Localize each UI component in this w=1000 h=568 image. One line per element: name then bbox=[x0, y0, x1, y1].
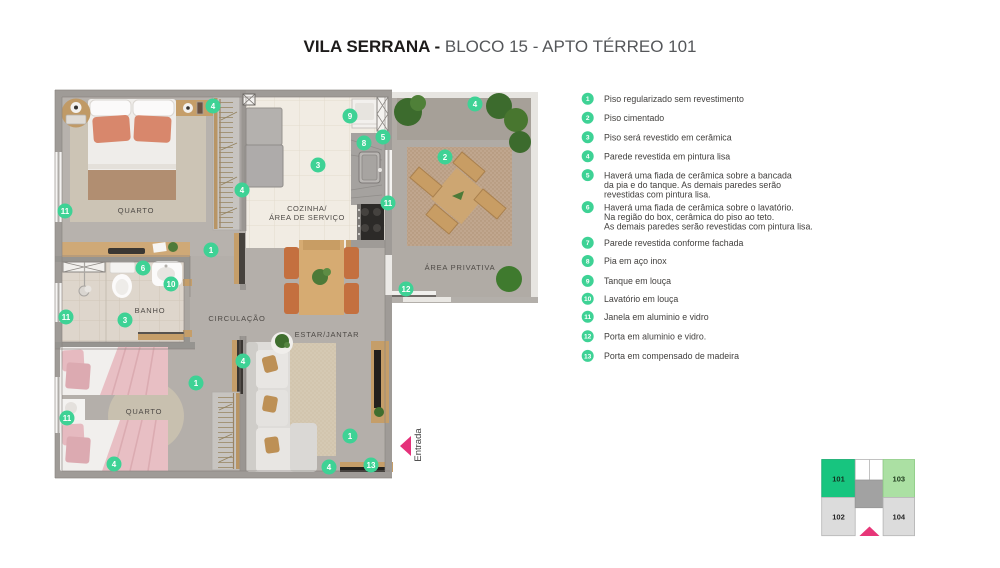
svg-text:8: 8 bbox=[362, 139, 367, 148]
svg-text:4: 4 bbox=[241, 357, 246, 366]
svg-text:10: 10 bbox=[584, 296, 592, 303]
svg-text:Janela em aluminio e vidro: Janela em aluminio e vidro bbox=[604, 312, 709, 322]
svg-text:11: 11 bbox=[584, 314, 591, 321]
svg-text:Lavatório em louça: Lavatório em louça bbox=[604, 294, 678, 304]
svg-text:2: 2 bbox=[443, 153, 448, 162]
svg-text:ÁREA DE SERVIÇO: ÁREA DE SERVIÇO bbox=[269, 213, 345, 222]
svg-text:4: 4 bbox=[211, 102, 216, 111]
svg-text:ÁREA PRIVATIVA: ÁREA PRIVATIVA bbox=[425, 263, 496, 272]
svg-text:3: 3 bbox=[586, 135, 590, 142]
svg-text:12: 12 bbox=[584, 334, 592, 341]
svg-text:13: 13 bbox=[584, 353, 592, 360]
svg-text:11: 11 bbox=[61, 207, 70, 216]
svg-text:BANHO: BANHO bbox=[135, 306, 166, 315]
svg-text:104: 104 bbox=[893, 513, 906, 522]
svg-text:1: 1 bbox=[348, 432, 353, 441]
svg-text:3: 3 bbox=[316, 161, 321, 170]
svg-text:101: 101 bbox=[832, 475, 845, 484]
svg-text:4: 4 bbox=[473, 100, 478, 109]
svg-text:11: 11 bbox=[384, 199, 393, 208]
svg-text:da pia e do tanque. As demais: da pia e do tanque. As demais paredes se… bbox=[604, 180, 781, 190]
svg-text:COZINHA/: COZINHA/ bbox=[287, 204, 327, 213]
svg-text:Parede revestida em pintura li: Parede revestida em pintura lisa bbox=[604, 151, 730, 161]
svg-text:102: 102 bbox=[832, 513, 845, 522]
svg-text:Porta em aluminio e vidro.: Porta em aluminio e vidro. bbox=[604, 332, 706, 342]
svg-text:6: 6 bbox=[586, 205, 590, 212]
svg-text:Haverá uma fiada de cerâmica s: Haverá uma fiada de cerâmica sobre o lav… bbox=[604, 202, 794, 212]
svg-text:Parede revestida conforme fach: Parede revestida conforme fachada bbox=[604, 238, 743, 248]
svg-text:ESTAR/JANTAR: ESTAR/JANTAR bbox=[295, 330, 360, 339]
svg-text:6: 6 bbox=[141, 264, 146, 273]
svg-text:1: 1 bbox=[586, 96, 590, 103]
svg-text:7: 7 bbox=[586, 240, 590, 247]
svg-text:4: 4 bbox=[240, 186, 245, 195]
svg-text:1: 1 bbox=[209, 246, 214, 255]
svg-text:1: 1 bbox=[194, 379, 199, 388]
svg-text:revestidas com pintura lisa.: revestidas com pintura lisa. bbox=[604, 190, 711, 200]
svg-text:12: 12 bbox=[402, 285, 411, 294]
svg-text:Piso regularizado sem revestim: Piso regularizado sem revestimento bbox=[604, 94, 744, 104]
svg-text:QUARTO: QUARTO bbox=[126, 407, 163, 416]
svg-text:11: 11 bbox=[62, 313, 71, 322]
svg-text:Piso será revestido em cerâmic: Piso será revestido em cerâmica bbox=[604, 133, 732, 143]
svg-text:Haverá uma fiada de cerâmica s: Haverá uma fiada de cerâmica sobre a ban… bbox=[604, 170, 792, 180]
svg-text:11: 11 bbox=[63, 414, 72, 423]
svg-text:Pia em aço inox: Pia em aço inox bbox=[604, 256, 667, 266]
svg-text:2: 2 bbox=[586, 115, 590, 122]
svg-text:CIRCULAÇÃO: CIRCULAÇÃO bbox=[208, 314, 265, 323]
svg-text:4: 4 bbox=[586, 154, 590, 161]
svg-text:Porta em compensado de madeira: Porta em compensado de madeira bbox=[604, 351, 739, 361]
svg-text:QUARTO: QUARTO bbox=[118, 206, 155, 215]
svg-text:9: 9 bbox=[586, 278, 590, 285]
svg-text:4: 4 bbox=[112, 460, 117, 469]
svg-text:10: 10 bbox=[167, 280, 176, 289]
svg-text:Na região do box, cerâmica do: Na região do box, cerâmica do piso ao te… bbox=[604, 212, 774, 222]
svg-text:3: 3 bbox=[123, 316, 128, 325]
svg-text:13: 13 bbox=[367, 461, 376, 470]
svg-text:Piso cimentado: Piso cimentado bbox=[604, 113, 664, 123]
svg-text:103: 103 bbox=[893, 475, 906, 484]
svg-text:VILA SERRANA - BLOCO 15 - APTO: VILA SERRANA - BLOCO 15 - APTO TÉRREO 10… bbox=[304, 37, 697, 56]
svg-text:As demais paredes serão revest: As demais paredes serão revestidas com p… bbox=[604, 222, 813, 232]
svg-text:Entrada: Entrada bbox=[413, 428, 424, 462]
svg-text:5: 5 bbox=[381, 133, 386, 142]
svg-text:8: 8 bbox=[586, 258, 590, 265]
svg-text:4: 4 bbox=[327, 463, 332, 472]
svg-text:Tanque em louça: Tanque em louça bbox=[604, 276, 671, 286]
svg-text:9: 9 bbox=[348, 112, 353, 121]
svg-text:5: 5 bbox=[586, 173, 590, 180]
